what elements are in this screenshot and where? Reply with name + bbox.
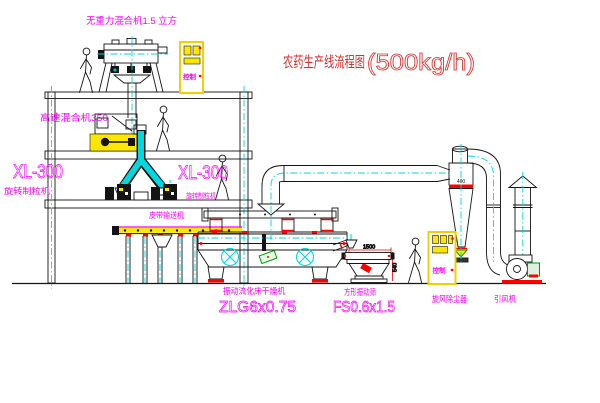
sieve-height-dim: 540: [393, 263, 399, 272]
worker-roof: [80, 48, 93, 92]
control-cabinet-roof: 控制: [180, 42, 203, 93]
label-granulator-model-left: XL-300: [13, 162, 63, 183]
label-cyclone: 旋风除尘器: [432, 294, 467, 304]
label-high-speed-mixer: 高速混合机350: [40, 112, 108, 124]
worker-ground: [409, 238, 422, 282]
label-gravity-mixer: 无重力混合机1.5 立方: [86, 15, 177, 27]
fluid-bed-dryer: [198, 208, 347, 283]
fan-suction-pipe: [468, 149, 509, 275]
control-cabinet-right: 控制: [429, 232, 456, 284]
drawing-canvas: 控制: [0, 0, 600, 403]
label-dryer-model: ZLG6x0.75: [219, 299, 296, 316]
label-granulator-name-right: 旋转制粒机: [186, 191, 216, 200]
induced-draft-fan: [502, 255, 542, 284]
cabinet-roof-label: 控制: [183, 72, 197, 81]
title-capacity: (500kg/h): [367, 49, 475, 75]
cabinet-right-label: 控制: [433, 266, 447, 275]
drawing-title: 农药生产线流程图 (500kg/h): [283, 49, 475, 75]
label-sieve-model: FS0.6x1.5: [333, 299, 395, 316]
label-fan: 引风机: [494, 294, 516, 304]
worker-mid-floor: [157, 106, 170, 150]
label-granulator-model-right: XL-300: [178, 163, 228, 184]
cad-flow-diagram: 控制: [0, 0, 600, 403]
vibrating-sieve: 1500 540: [333, 234, 399, 283]
label-granulator-name-left: 旋转制粒机: [4, 186, 51, 196]
label-dryer-name: 振动流化床干燥机: [223, 286, 285, 296]
label-sieve-name: 方形振动筛: [344, 287, 376, 297]
sieve-width-dim: 1500: [363, 245, 375, 251]
label-belt-conveyor: 皮带输送机: [149, 210, 184, 220]
title-text: 农药生产线流程图: [283, 54, 365, 71]
exhaust-duct: [258, 166, 450, 241]
